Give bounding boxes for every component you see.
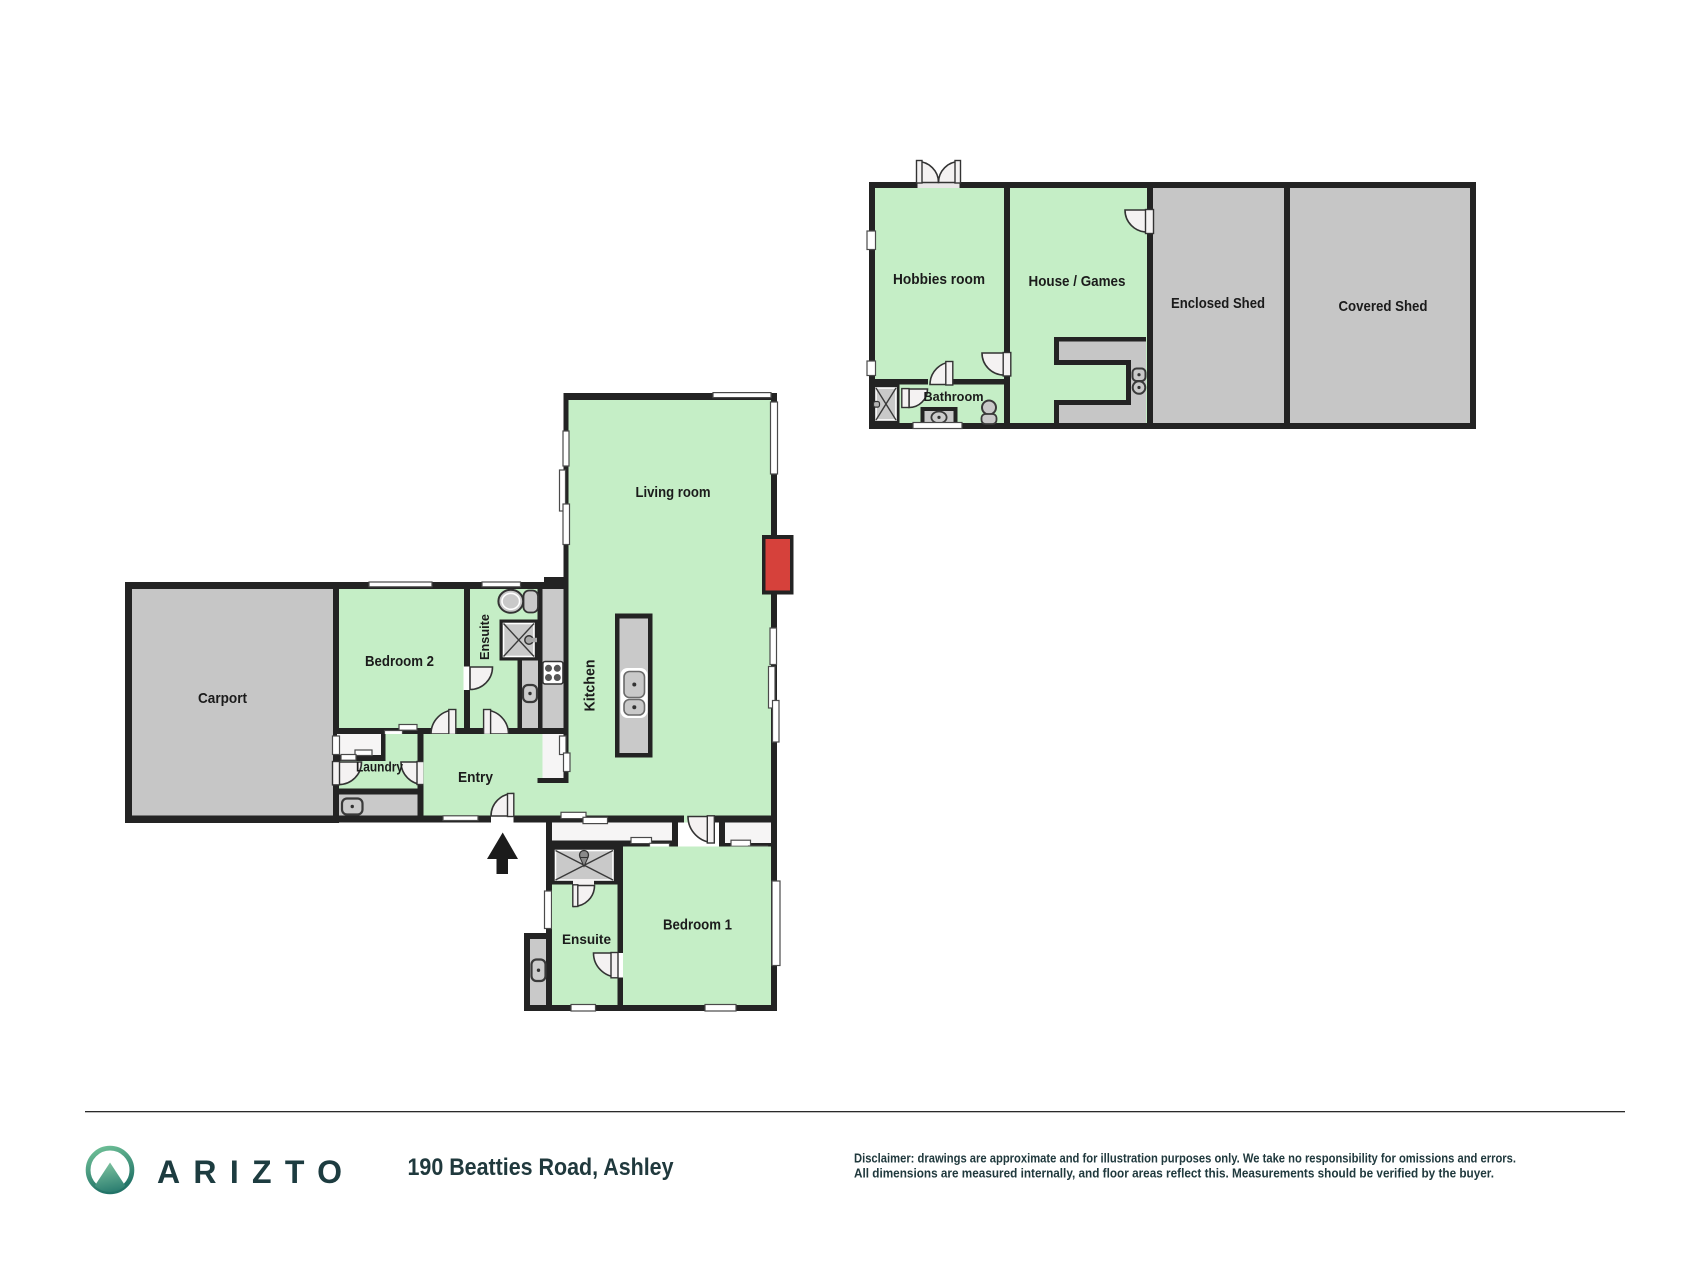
svg-text:190 Beatties Road, Ashley: 190 Beatties Road, Ashley <box>408 1154 675 1181</box>
svg-text:Enclosed Shed: Enclosed Shed <box>1171 295 1265 312</box>
svg-text:Bedroom 1: Bedroom 1 <box>663 917 732 934</box>
svg-text:All dimensions are measured in: All dimensions are measured internally, … <box>854 1167 1494 1181</box>
svg-text:Ensuite: Ensuite <box>562 931 611 947</box>
svg-text:Disclaimer: drawings are appro: Disclaimer: drawings are approximate and… <box>854 1152 1516 1166</box>
svg-text:Carport: Carport <box>198 690 247 707</box>
svg-text:Hobbies room: Hobbies room <box>893 271 985 288</box>
svg-text:Ensuite: Ensuite <box>477 614 492 660</box>
svg-text:Kitchen: Kitchen <box>582 660 599 712</box>
svg-text:Covered Shed: Covered Shed <box>1339 298 1428 315</box>
svg-text:House / Games: House / Games <box>1029 273 1126 290</box>
svg-text:ARIZTO: ARIZTO <box>157 1154 353 1190</box>
svg-text:Entry: Entry <box>458 769 494 786</box>
svg-text:Bathroom: Bathroom <box>924 390 984 404</box>
svg-text:Bedroom 2: Bedroom 2 <box>365 653 434 670</box>
svg-text:Living room: Living room <box>636 484 711 501</box>
svg-text:Laundry: Laundry <box>356 760 403 775</box>
